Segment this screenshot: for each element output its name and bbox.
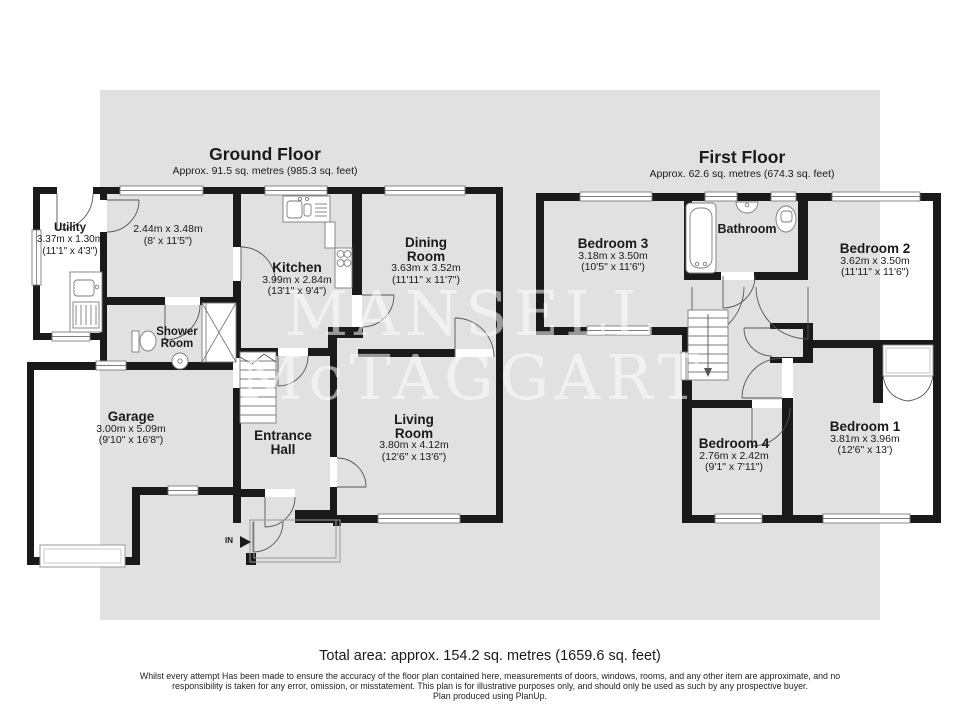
- room-label-bedroom2: Bedroom 2 3.62m x 3.50m (11'11" x 11'6"): [840, 242, 911, 279]
- kitchen-sink-fixture: [283, 196, 335, 248]
- wardrobe-door-arc: [908, 375, 933, 401]
- room-label-bathroom: Bathroom: [717, 223, 776, 237]
- ground-floor-stairs: [240, 352, 276, 423]
- toilet-fixture: [132, 331, 139, 352]
- entry-arrow-icon: [240, 536, 251, 548]
- total-area-text: Total area: approx. 154.2 sq. metres (16…: [0, 648, 980, 665]
- wardrobe-recess: [883, 345, 933, 376]
- first-floor-title: First Floor: [649, 148, 834, 166]
- toilet-fixture: [776, 206, 796, 232]
- garage-door: [40, 545, 125, 567]
- utility-sink-fixture: [70, 272, 102, 332]
- disclaimer-line3: Plan produced using PlanUp.: [0, 692, 980, 702]
- window: [715, 514, 762, 523]
- room-label-entrance-hall: Entrance Hall: [254, 429, 312, 456]
- room-label-living-room: Living Room 3.80m x 4.12m (12'6" x 13'6"…: [379, 413, 448, 463]
- room-label-bedroom3: Bedroom 3 3.18m x 3.50m (10'5" x 11'6"): [578, 237, 649, 274]
- window: [580, 192, 652, 201]
- basin-fixture: [736, 202, 758, 213]
- room-label-dining-room: Dining Room 3.63m x 3.52m (11'11" x 11'7…: [391, 236, 460, 286]
- room-label-bedroom4: Bedroom 4 2.76m x 2.42m (9'1" x 7'11"): [699, 437, 770, 474]
- ground-floor-title: Ground Floor: [172, 145, 357, 163]
- window: [587, 326, 650, 335]
- first-floor-stairs: [688, 310, 728, 380]
- bathroom-fixtures: [686, 202, 796, 273]
- room-label-utility: Utility 3.37m x 1.30m (11'1" x 4'3"): [37, 222, 103, 257]
- room-label-shower-room: Shower Room: [156, 326, 198, 350]
- hob-fixture: [335, 248, 352, 288]
- window: [832, 192, 920, 201]
- bath-fixture: [686, 203, 716, 273]
- floorplan-drawing: [0, 0, 980, 712]
- wardrobe-door-arc: [883, 375, 908, 401]
- room-label-front-room: 2.44m x 3.48m (8' x 11'5"): [133, 224, 202, 247]
- window: [120, 186, 203, 195]
- window: [823, 514, 910, 523]
- room-label-garage: Garage 3.00m x 5.09m (9'10" x 16'8"): [96, 410, 165, 447]
- first-floor-header: First Floor Approx. 62.6 sq. metres (674…: [649, 148, 834, 180]
- window: [705, 192, 737, 201]
- floorplan-page: MANSELL McTAGGART Ground Floor Approx. 9…: [0, 0, 980, 712]
- window: [385, 186, 465, 195]
- ground-floor-header: Ground Floor Approx. 91.5 sq. metres (98…: [172, 145, 357, 177]
- window: [378, 514, 460, 523]
- window: [96, 361, 126, 370]
- window: [771, 192, 796, 201]
- room-label-bedroom1: Bedroom 1 3.81m x 3.96m (12'6" x 13'): [830, 420, 901, 457]
- entry-marker-label: IN: [225, 536, 233, 545]
- window: [52, 332, 90, 341]
- porch-outline: [250, 520, 340, 562]
- ground-floor-area: Approx. 91.5 sq. metres (985.3 sq. feet): [172, 166, 357, 177]
- footer: Total area: approx. 154.2 sq. metres (16…: [0, 648, 980, 701]
- window: [168, 486, 198, 495]
- first-floor-area: Approx. 62.6 sq. metres (674.3 sq. feet): [649, 169, 834, 180]
- window: [265, 186, 327, 195]
- room-label-kitchen: Kitchen 3.99m x 2.84m (13'1" x 9'4"): [262, 261, 331, 298]
